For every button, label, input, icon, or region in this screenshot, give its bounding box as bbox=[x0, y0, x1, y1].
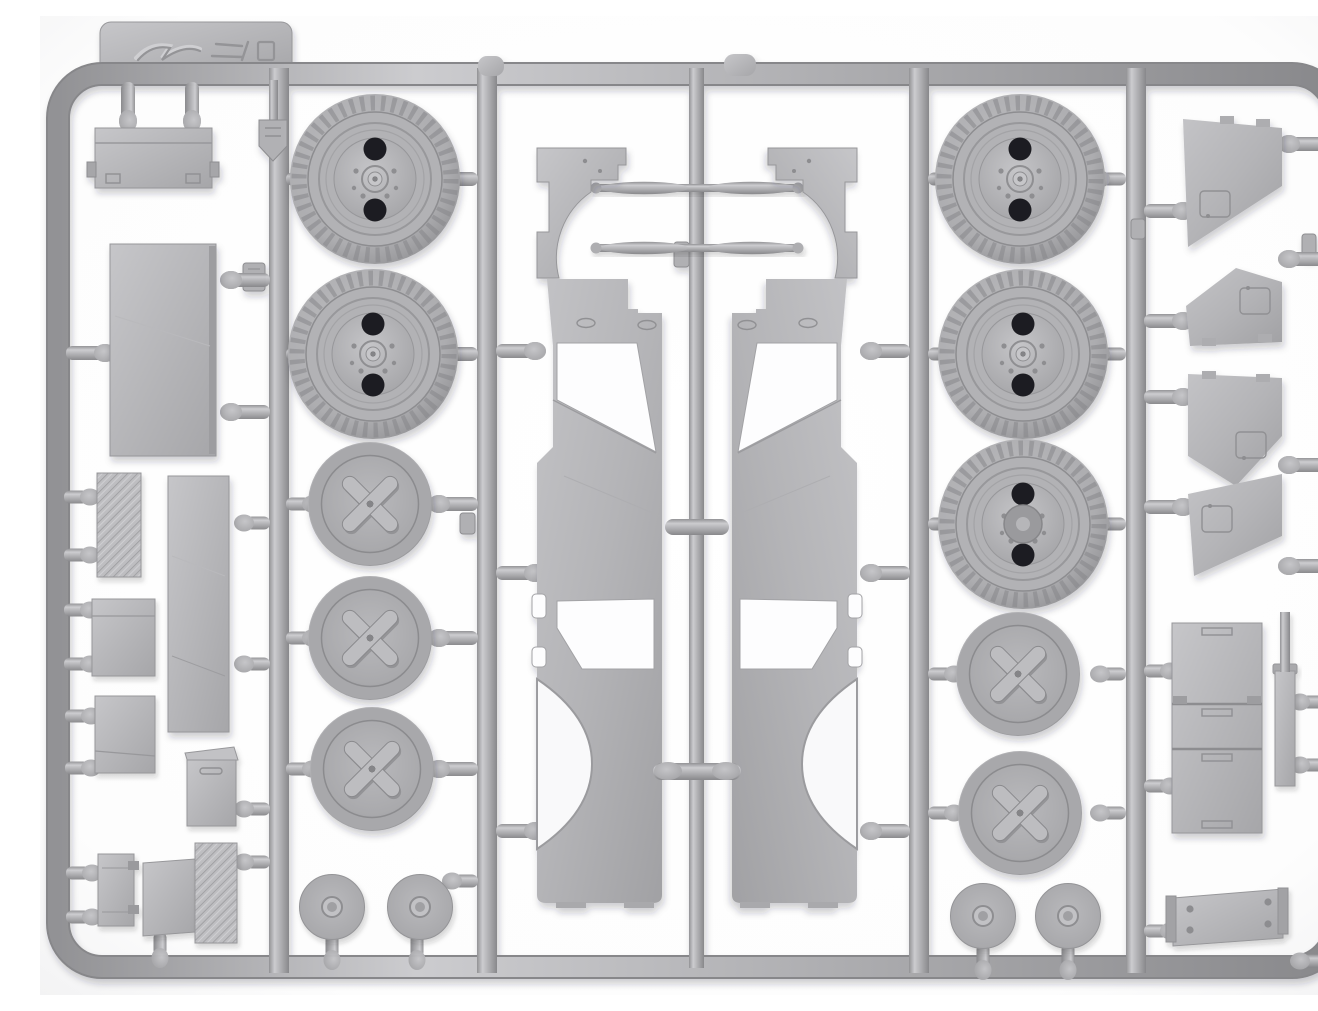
road-wheel: Treaded road wheel bbox=[938, 439, 1108, 609]
runner-center bbox=[689, 68, 704, 968]
runner-b bbox=[477, 68, 497, 973]
frame-knob bbox=[478, 56, 504, 76]
part-number-tag bbox=[460, 513, 475, 534]
narrow-panel: Long narrow panel bbox=[168, 476, 229, 732]
bottom-box: Stowage box bbox=[143, 859, 195, 936]
floor-panel: Large floor panel bbox=[110, 244, 216, 456]
road-wheel: Treaded road wheel bbox=[288, 269, 458, 439]
road-wheel: Treaded road wheel bbox=[290, 94, 460, 264]
x-spoke-wheel: X-spoke inner wheel half bbox=[958, 751, 1082, 875]
part-number-tag bbox=[1131, 219, 1145, 239]
x-spoke-wheel: X-spoke inner wheel half bbox=[308, 442, 432, 566]
toolbox: Tool box with latches bbox=[87, 128, 219, 188]
knurled-plate: Textured tread plate bbox=[195, 843, 237, 943]
sprue-photo: Sprue frame and runners Sprue tab with e… bbox=[40, 16, 1318, 995]
lidded-box: Lidded stowage box bbox=[185, 747, 238, 826]
x-spoke-wheel: X-spoke inner wheel half bbox=[956, 612, 1080, 736]
runner-e bbox=[1126, 68, 1146, 973]
road-wheel: Treaded road wheel bbox=[935, 94, 1105, 264]
hub-cap-disc: Wheel hub cap disc bbox=[300, 875, 365, 940]
stowage-box: Stowage box bbox=[92, 599, 155, 676]
hub-cap-disc: Wheel hub cap disc bbox=[388, 875, 453, 940]
hub-cap-disc: Wheel hub cap disc bbox=[951, 884, 1016, 949]
riveted-plate: Mounting plate with rivets bbox=[1166, 888, 1288, 946]
runner-d bbox=[909, 68, 929, 973]
stowage-box: Stowage box bbox=[95, 696, 155, 773]
road-wheel: Treaded road wheel bbox=[938, 269, 1108, 439]
hub-cap-disc: Wheel hub cap disc bbox=[1036, 884, 1101, 949]
locker-stack: Stacked locker / bin fronts bbox=[1172, 623, 1262, 833]
x-spoke-wheel: X-spoke inner wheel half bbox=[310, 707, 434, 831]
frame-knob bbox=[724, 54, 756, 76]
clasp-box: Small box with clasps bbox=[98, 854, 139, 926]
x-spoke-wheel: X-spoke inner wheel half bbox=[308, 576, 432, 700]
tread-plate: Anti-slip tread plate bbox=[97, 473, 141, 577]
runner-a bbox=[269, 68, 289, 973]
